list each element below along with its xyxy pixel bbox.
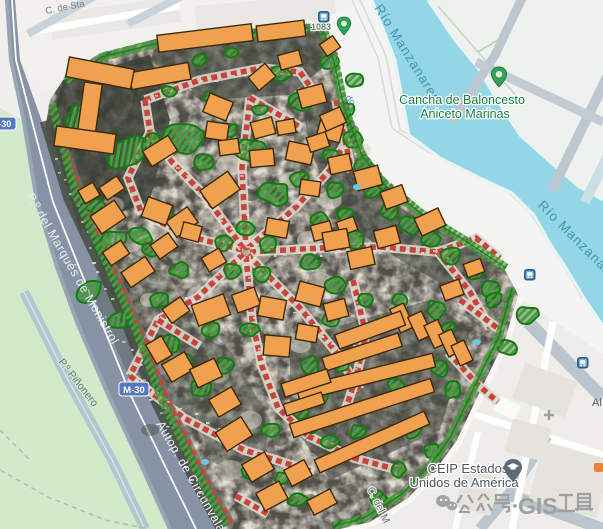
- svg-text:1083: 1083: [311, 22, 331, 32]
- svg-text:Al: Al: [592, 397, 602, 409]
- svg-text:Aniceto Marinas: Aniceto Marinas: [420, 107, 510, 121]
- svg-text:Unidos de América: Unidos de América: [409, 475, 519, 490]
- svg-text:M-30: M-30: [0, 119, 11, 129]
- svg-text:GIS: GIS: [518, 493, 558, 519]
- svg-text:M-30: M-30: [123, 385, 145, 396]
- svg-text:Cancha de Baloncesto: Cancha de Baloncesto: [399, 93, 525, 107]
- svg-text:CEIP Estados: CEIP Estados: [428, 461, 509, 476]
